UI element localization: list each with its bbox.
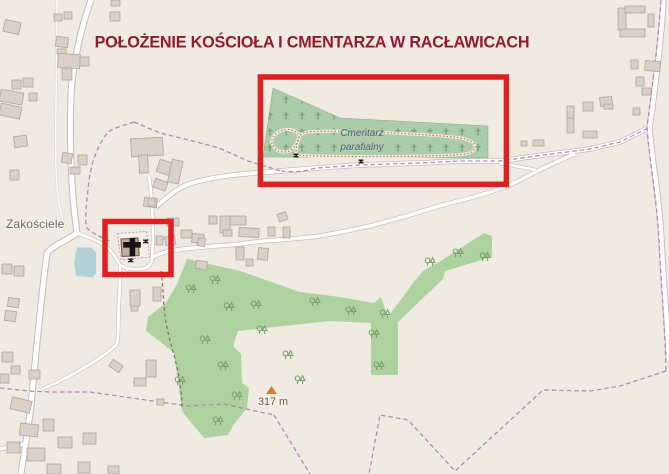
svg-text:POŁOŻENIE KOŚCIOŁA I CMENTARZA: POŁOŻENIE KOŚCIOŁA I CMENTARZA W RACŁAWI… [95, 33, 530, 52]
svg-text:317 m: 317 m [258, 396, 288, 408]
svg-text:Cmentarz: Cmentarz [340, 128, 383, 139]
svg-text:Zakościele: Zakościele [6, 217, 65, 231]
svg-text:parafialny: parafialny [339, 142, 384, 153]
